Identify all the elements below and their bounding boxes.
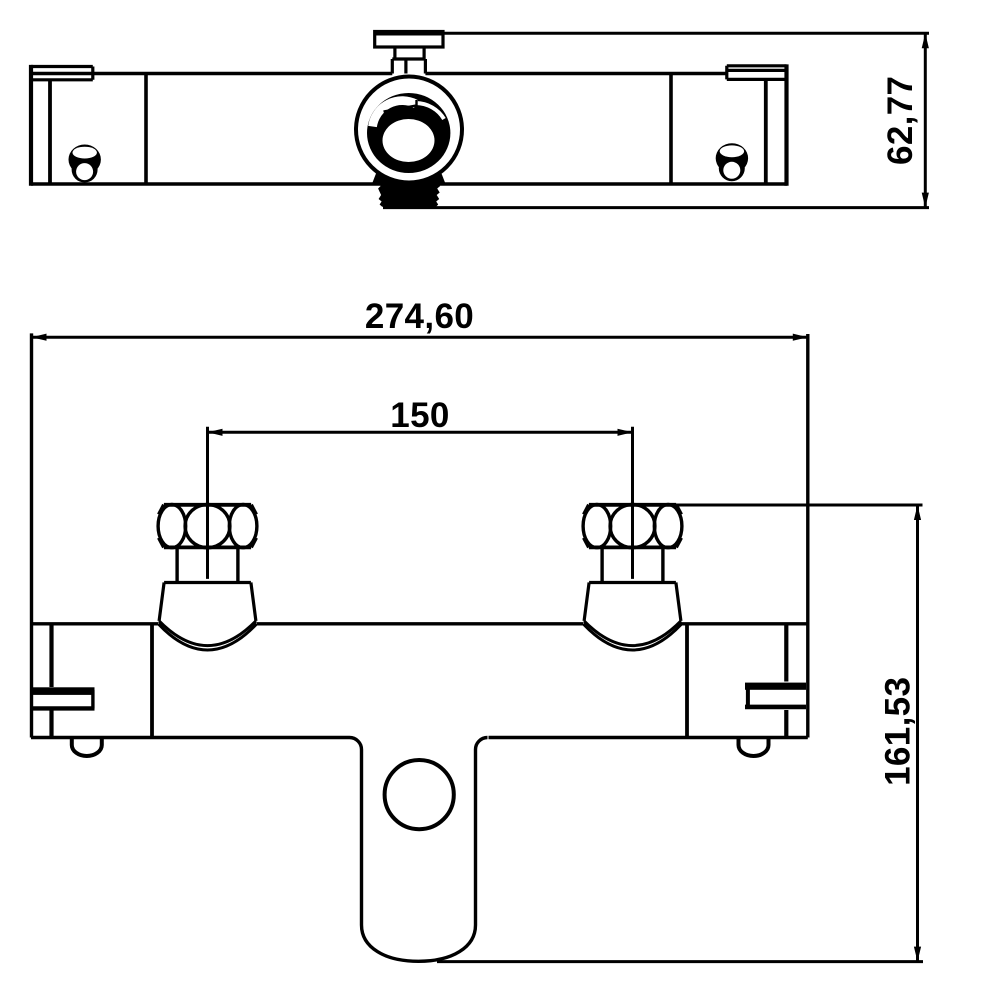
- svg-text:62,77: 62,77: [881, 76, 920, 165]
- svg-text:161,53: 161,53: [878, 677, 917, 786]
- svg-text:150: 150: [390, 396, 449, 435]
- svg-text:274,60: 274,60: [365, 297, 474, 336]
